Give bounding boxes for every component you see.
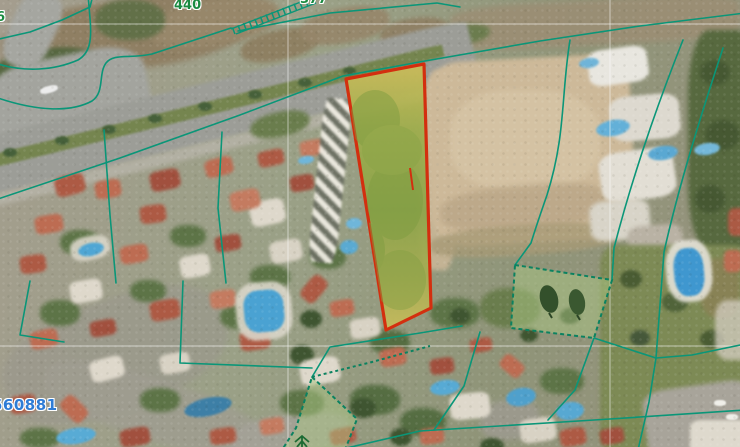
parcel-number-label-440: 440 xyxy=(174,0,201,13)
hatched-parcel-bottom xyxy=(282,346,430,447)
highlighted-parcel[interactable] xyxy=(345,64,431,330)
parcel-number-label-377: 377 xyxy=(300,0,327,7)
map-sheet-number-label: 560881 xyxy=(0,396,58,414)
map-viewport[interactable]: 440 377 6 560881 xyxy=(0,0,740,447)
vegetation-parcel xyxy=(511,265,612,338)
cadastral-overlay xyxy=(0,0,740,447)
parcel-number-label-left: 6 xyxy=(0,10,5,25)
